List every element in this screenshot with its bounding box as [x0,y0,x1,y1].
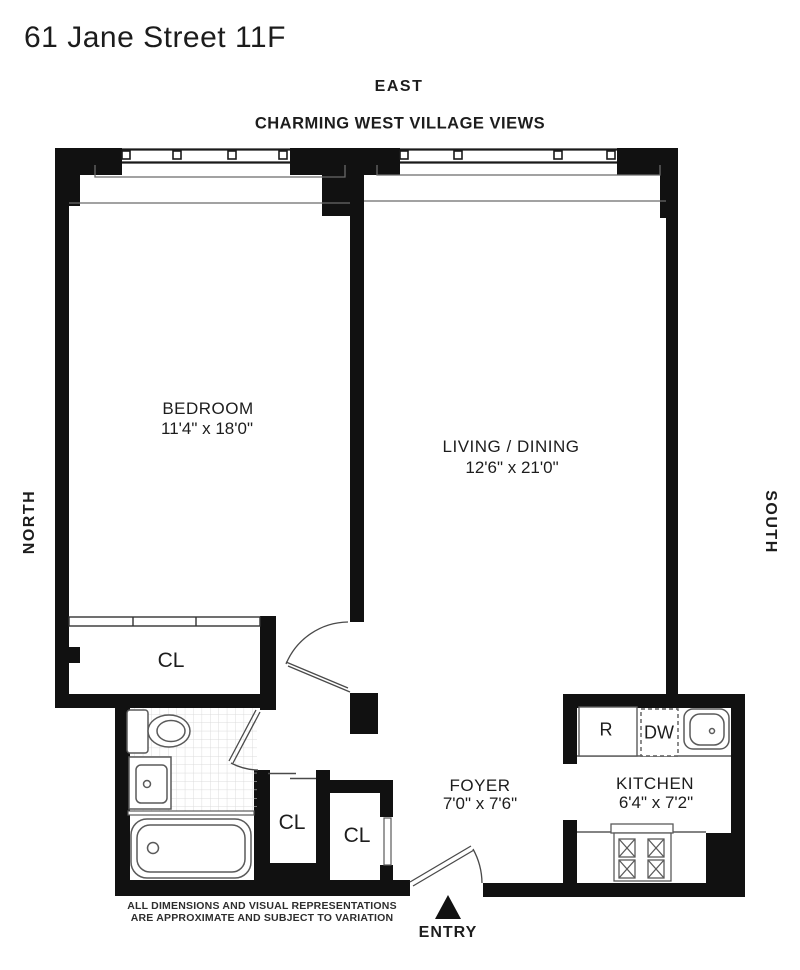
window-mullion [122,151,130,159]
window-mullion [607,151,615,159]
floorplan-drawing [0,0,800,970]
toilet-bowl-inner [157,721,185,742]
dishwasher-label: DW [644,723,674,744]
wall-kitchen-top [563,694,745,708]
entry-door-arc [473,849,482,883]
vanity-basin [136,765,167,803]
floorplan-page: 61 Jane Street 11F EAST CHARMING WEST VI… [0,0,800,970]
entry-label: ENTRY [419,924,478,942]
disclaimer-line1: ALL DIMENSIONS AND VISUAL REPRESENTATION… [127,900,397,912]
bedroom-dimensions: 11'4" x 18'0" [161,419,253,439]
foyer-closet1-label: CL [279,811,306,835]
kitchen-dimensions: 6'4" x 7'2" [619,793,693,813]
wall-dividing [350,214,364,622]
wall-closet1-bottom [254,863,330,880]
wall-bottom-right [483,883,745,897]
window-mullion [400,151,408,159]
wall-bedroom-closet-right [260,616,276,710]
bathtub [131,819,251,878]
kitchen-sink [684,709,729,749]
wall-top-right-corner [617,148,678,175]
wall-bottom-left [115,880,410,896]
bedroom-door-arc [286,622,348,664]
compass-south: SOUTH [761,490,779,554]
foyer-dimensions: 7'0" x 7'6" [443,794,517,814]
wall-center-stem [322,172,364,216]
living-dining-label: LIVING / DINING [443,437,580,457]
stove-back-plate [611,824,673,833]
compass-east: EAST [375,78,424,96]
bathroom-half-wall [128,811,254,815]
entry-arrow-icon [435,895,461,919]
wall-left [55,148,69,708]
bedroom-closet-label: CL [158,649,185,673]
bathroom-vanity-sink [129,757,171,809]
wall-left-pilaster [55,647,80,663]
window-mullion [554,151,562,159]
wall-kitchen-left-lower [563,820,577,884]
window-mullion [454,151,462,159]
living-window [400,150,617,163]
toilet-tank [127,710,148,753]
bedroom-door [286,622,350,692]
foyer-label: FOYER [449,776,510,796]
compass-north: NORTH [21,490,39,554]
kitchen-sink-drain [710,729,715,734]
refrigerator-label: R [600,720,613,741]
wall-closet2-right-lower [380,865,393,896]
wall-dividing-foot [350,693,378,734]
page-title: 61 Jane Street 11F [24,21,286,55]
marketing-subtitle: CHARMING WEST VILLAGE VIEWS [255,115,545,134]
bedroom-window [122,150,290,163]
window-mullion [279,151,287,159]
closet2-door [384,818,391,865]
window-mullion [173,151,181,159]
kitchen-sink-basin [690,714,724,745]
stove [611,824,673,881]
bathtub-drain [148,843,159,854]
bedroom-label: BEDROOM [162,399,253,419]
wall-closet2-right-upper [380,780,393,817]
foyer-closet2-label: CL [344,824,371,848]
disclaimer-line2: ARE APPROXIMATE AND SUBJECT TO VARIATION [131,912,394,924]
vanity-drain [144,781,151,788]
wall-right [666,172,678,696]
entry-door [410,846,482,886]
wall-bathroom-top [55,694,270,708]
closet1-sliding-door [268,774,316,779]
window-mullion [228,151,236,159]
living-dining-dimensions: 12'6" x 21'0" [465,458,558,478]
wall-kitchen-left-upper [563,694,577,764]
kitchen-label: KITCHEN [616,774,694,794]
bedroom-closet-sliding-door [69,617,260,626]
